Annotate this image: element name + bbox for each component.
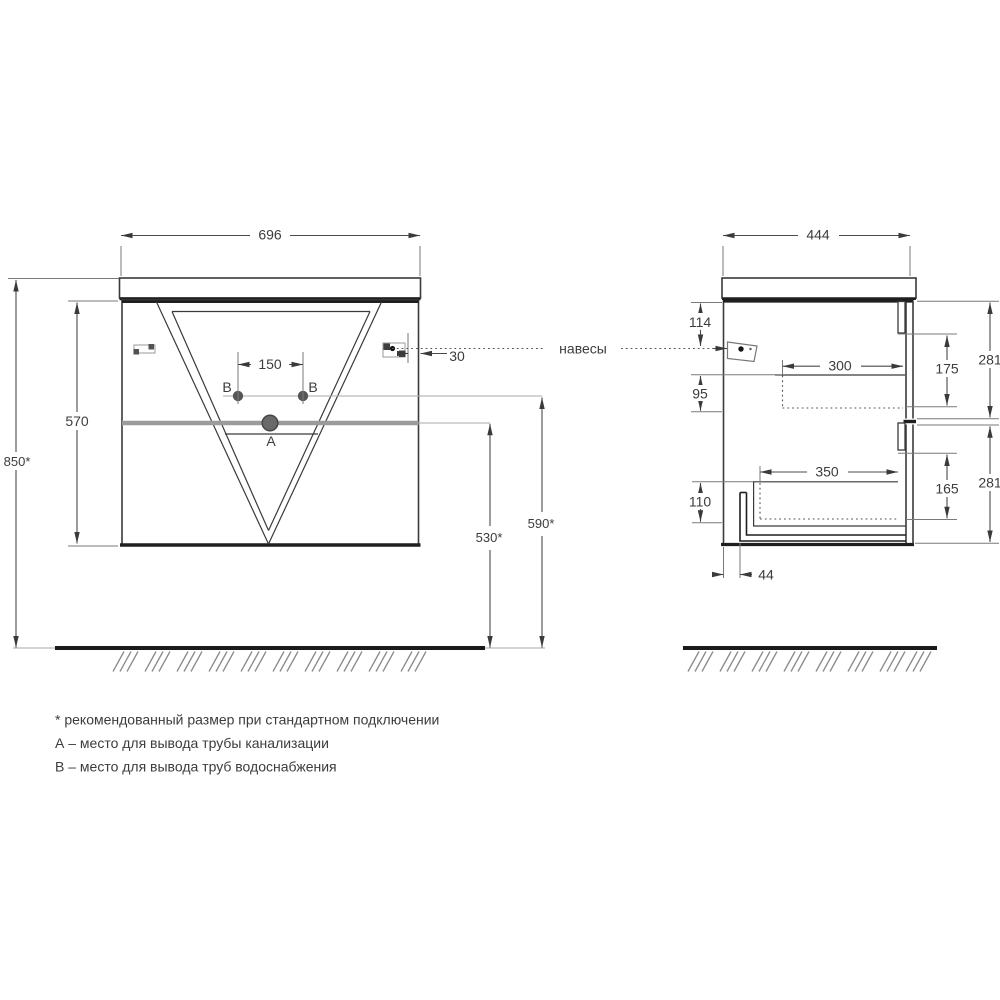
hangers-reference: навесы: [392, 341, 727, 357]
side-view: 444 114 95 110: [683, 226, 1000, 583]
note-a: А – место для вывода трубы канализации: [55, 735, 329, 751]
dim-depth: 444: [723, 226, 910, 276]
dim-label-110: 110: [689, 494, 712, 510]
dim-label-175: 175: [935, 361, 959, 377]
dim-label-44: 44: [758, 567, 774, 583]
dim-label-530: 530*: [476, 530, 503, 545]
dim-label-350: 350: [815, 464, 839, 480]
ground-right: [683, 648, 937, 672]
dim-mount-height: 850*: [0, 279, 119, 648]
outlet-a-dot: [262, 415, 278, 431]
dim-supply-height: 590*: [528, 398, 555, 648]
hatching-left: [113, 652, 426, 672]
front-view: В В А 696 570 850*: [0, 226, 554, 648]
dim-label-570: 570: [65, 413, 89, 429]
dim-label-590: 590*: [528, 516, 555, 531]
side-drawer-fronts: [904, 301, 917, 544]
top-drawer-interior: [775, 375, 905, 408]
dim-cabinet-height: 570: [58, 301, 118, 546]
dim-gap-bottom: 110: [683, 482, 753, 523]
legend-notes: * рекомендованный размер при стандартном…: [55, 712, 439, 775]
dim-label-444: 444: [806, 227, 830, 243]
front-hanger-right: [383, 343, 406, 357]
dim-label-95: 95: [692, 386, 708, 402]
side-hanger: [728, 342, 758, 362]
front-hanger-left: [134, 344, 156, 355]
dim-top-drawer-height: 175: [898, 334, 966, 407]
vanity-installation-diagram: В В А 696 570 850*: [0, 0, 1000, 1000]
point-a-label: А: [266, 433, 276, 449]
dim-label-150: 150: [258, 356, 282, 372]
bottom-drawer-interior: [753, 482, 906, 526]
bottom-drawer-front-wall: [898, 423, 905, 450]
dim-bottom-drawer-depth: 350: [760, 463, 898, 481]
dim-label-281-bottom: 281: [978, 475, 1000, 491]
dim-label-850: 850*: [4, 454, 31, 469]
note-asterisk: * рекомендованный размер при стандартном…: [55, 712, 439, 728]
dim-label-165: 165: [935, 481, 959, 497]
top-drawer-front-wall: [898, 302, 905, 334]
dim-front-width: 696: [121, 226, 420, 276]
dim-top-drawer-depth: 300: [783, 357, 904, 375]
siphon-cutout: [740, 493, 906, 542]
point-b-left-label: В: [222, 379, 231, 395]
dim-bottom-drawer-height: 165: [898, 453, 966, 519]
note-b: В – место для вывода труб водоснабжения: [55, 759, 337, 775]
dim-label-300: 300: [828, 358, 852, 374]
side-countertop: [722, 278, 916, 298]
dim-label-30: 30: [449, 348, 465, 364]
ground-left: [13, 648, 545, 672]
technical-drawing-page: В В А 696 570 850*: [0, 0, 1000, 1000]
front-countertop: [120, 278, 421, 298]
hatching-right: [688, 652, 931, 672]
dim-label-281-top: 281: [978, 352, 1000, 368]
dim-gap-top: 95: [686, 375, 782, 412]
dim-drain-height: 530*: [476, 424, 503, 648]
dim-bottom-clearance: 44: [712, 543, 774, 583]
dim-label-114: 114: [689, 314, 712, 330]
point-b-right-label: В: [308, 379, 317, 395]
dim-label-696: 696: [258, 227, 282, 243]
dim-hanger-drop: 114: [683, 303, 722, 347]
hangers-label: навесы: [559, 341, 607, 357]
